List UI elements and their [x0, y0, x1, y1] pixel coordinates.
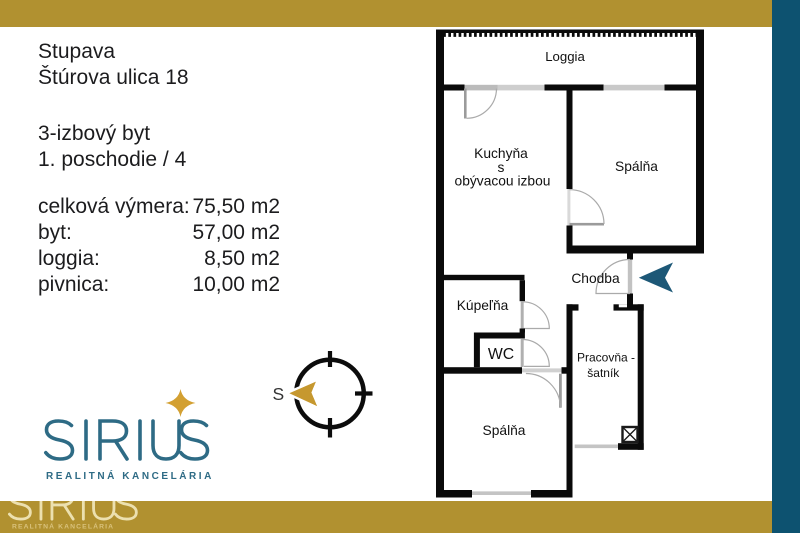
- svg-text:Spálňa: Spálňa: [615, 159, 658, 174]
- svg-text:s: s: [498, 160, 505, 175]
- svg-text:Spálňa: Spálňa: [483, 423, 526, 438]
- svg-text:obývacou izbou: obývacou izbou: [455, 174, 551, 189]
- svg-text:WC: WC: [488, 346, 514, 363]
- svg-text:šatník: šatník: [587, 366, 620, 380]
- svg-text:Chodba: Chodba: [571, 271, 620, 286]
- svg-text:Kúpeľňa: Kúpeľňa: [457, 298, 509, 313]
- svg-text:Loggia: Loggia: [545, 49, 585, 64]
- svg-text:Pracovňa -: Pracovňa -: [577, 351, 635, 365]
